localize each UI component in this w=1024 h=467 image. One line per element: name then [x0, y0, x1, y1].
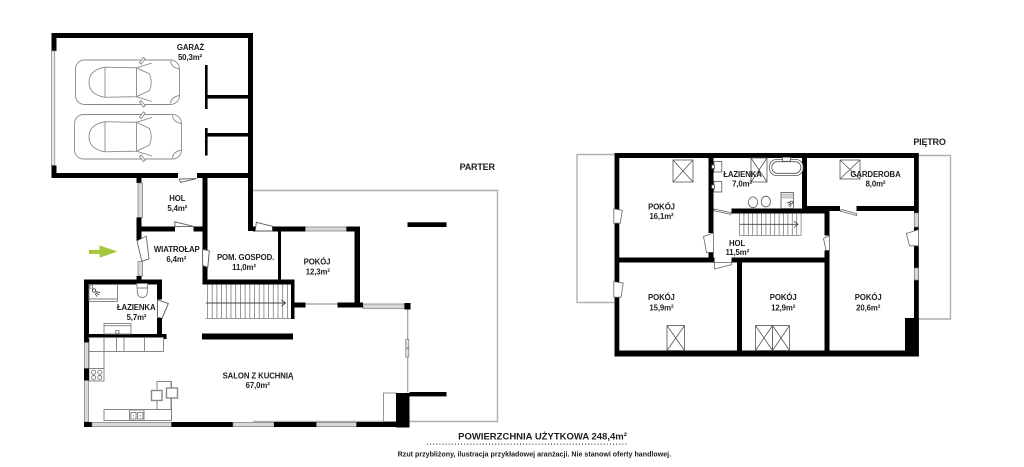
svg-text:PIĘTRO: PIĘTRO: [913, 137, 946, 147]
svg-text:12,9m²: 12,9m²: [771, 303, 796, 312]
svg-text:11,0m²: 11,0m²: [232, 263, 256, 272]
svg-text:67,0m²: 67,0m²: [246, 381, 271, 390]
svg-text:POKÓJ: POKÓJ: [855, 293, 882, 302]
svg-text:POM. GOSPOD.: POM. GOSPOD.: [217, 253, 274, 262]
svg-text:HOL: HOL: [729, 239, 745, 248]
svg-text:WIATROŁAP: WIATROŁAP: [154, 245, 200, 254]
svg-text:ŁAZIENKA: ŁAZIENKA: [723, 170, 762, 179]
svg-text:5,7m²: 5,7m²: [127, 313, 147, 322]
svg-text:5,4m²: 5,4m²: [167, 204, 187, 213]
svg-text:16,1m²: 16,1m²: [649, 212, 674, 221]
svg-text:HOL: HOL: [169, 194, 185, 203]
svg-text:GARDEROBA: GARDEROBA: [850, 170, 901, 179]
svg-text:50,3m²: 50,3m²: [178, 53, 203, 62]
svg-text:POKÓJ: POKÓJ: [770, 293, 797, 302]
svg-text:Rzut przybliżony, ilustracja p: Rzut przybliżony, ilustracja przykładowe…: [398, 451, 671, 459]
svg-text:PARTER: PARTER: [460, 162, 496, 172]
svg-text:POKÓJ: POKÓJ: [648, 203, 675, 212]
svg-text:12,3m²: 12,3m²: [306, 268, 331, 277]
svg-text:15,9m²: 15,9m²: [649, 303, 674, 312]
svg-text:20,6m²: 20,6m²: [856, 303, 881, 312]
svg-text:7,0m²: 7,0m²: [732, 180, 752, 189]
svg-text:8,0m²: 8,0m²: [866, 180, 886, 189]
svg-text:6,4m²: 6,4m²: [166, 255, 186, 264]
svg-text:ŁAZIENKA: ŁAZIENKA: [117, 303, 156, 312]
svg-text:POKÓJ: POKÓJ: [648, 293, 675, 302]
svg-text:SALON Z KUCHNIĄ: SALON Z KUCHNIĄ: [223, 371, 294, 380]
svg-text:11,5m²: 11,5m²: [725, 248, 749, 257]
svg-text:POWIERZCHNIA UŻYTKOWA 248,4m²: POWIERZCHNIA UŻYTKOWA 248,4m²: [458, 431, 627, 442]
svg-text:GARAŻ: GARAŻ: [177, 43, 205, 52]
svg-text:POKÓJ: POKÓJ: [304, 258, 331, 267]
